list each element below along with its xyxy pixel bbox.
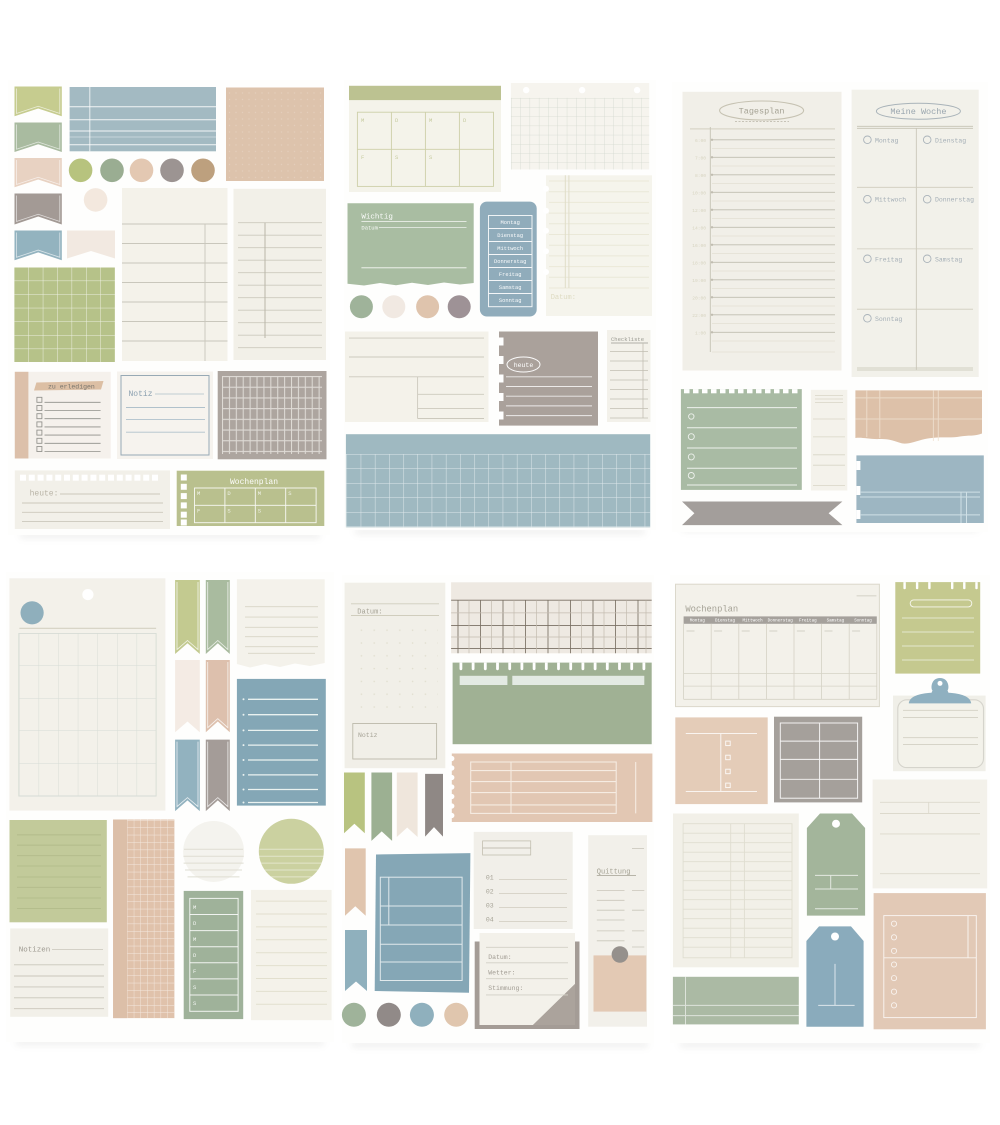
svg-text:Donnerstag: Donnerstag — [935, 197, 974, 204]
svg-text:Datum: Datum — [361, 225, 378, 232]
svg-text:Montag: Montag — [875, 137, 899, 144]
svg-text:04: 04 — [486, 917, 494, 924]
svg-text:Montag: Montag — [500, 220, 519, 226]
svg-text:Donnerstag: Donnerstag — [494, 259, 526, 265]
svg-text:Wetter:: Wetter: — [488, 970, 515, 977]
svg-text:03: 03 — [486, 903, 494, 910]
svg-text:Sonntag: Sonntag — [854, 620, 872, 624]
svg-text:Dienstag: Dienstag — [497, 233, 523, 239]
svg-text:Checkliste: Checkliste — [611, 336, 644, 343]
svg-text:Sonntag: Sonntag — [875, 316, 902, 323]
svg-text:Freitag: Freitag — [799, 619, 817, 624]
svg-text:M: M — [258, 490, 261, 497]
svg-text:1:00: 1:00 — [695, 331, 706, 337]
svg-text:7:00: 7:00 — [695, 156, 706, 162]
svg-text:16:00: 16:00 — [692, 243, 706, 249]
svg-text:Mittwoch: Mittwoch — [875, 197, 906, 204]
svg-text:8:00: 8:00 — [695, 173, 706, 179]
svg-text:F: F — [361, 154, 364, 161]
svg-text:Samstag: Samstag — [499, 285, 522, 291]
svg-text:F: F — [193, 968, 196, 975]
svg-text:02: 02 — [486, 889, 494, 896]
svg-text:10:00: 10:00 — [692, 191, 706, 197]
svg-text:Datum:: Datum: — [488, 954, 511, 961]
svg-text:heute:: heute: — [30, 490, 59, 499]
svg-text:22:00: 22:00 — [692, 313, 706, 319]
svg-text:Wochenplan: Wochenplan — [685, 605, 738, 615]
svg-text:Tagesplan: Tagesplan — [739, 107, 785, 117]
svg-text:Mittwoch: Mittwoch — [743, 619, 764, 624]
svg-text:Meine Woche: Meine Woche — [890, 107, 946, 117]
svg-text:M: M — [429, 117, 432, 124]
svg-text:Mittwoch: Mittwoch — [497, 246, 523, 252]
svg-text:M: M — [193, 904, 196, 911]
svg-text:M: M — [361, 117, 364, 124]
svg-text:Wochenplan: Wochenplan — [230, 478, 278, 487]
svg-text:Stimmung:: Stimmung: — [488, 985, 523, 992]
svg-text:Samstag: Samstag — [827, 620, 845, 624]
svg-text:Donnerstag: Donnerstag — [768, 620, 794, 624]
svg-text:Datum:: Datum: — [551, 294, 576, 302]
svg-text:Freitag: Freitag — [499, 272, 522, 278]
svg-text:Notiz: Notiz — [358, 732, 378, 739]
svg-text:Notiz: Notiz — [129, 390, 153, 399]
svg-text:6:00: 6:00 — [695, 138, 706, 144]
svg-text:M: M — [193, 936, 196, 943]
svg-text:zu erledigen: zu erledigen — [48, 383, 95, 390]
svg-text:20:00: 20:00 — [692, 296, 706, 302]
svg-text:Samstag: Samstag — [935, 256, 962, 263]
svg-text:Dienstag: Dienstag — [935, 137, 966, 144]
svg-text:12:00: 12:00 — [692, 208, 706, 214]
svg-text:F: F — [197, 507, 200, 514]
svg-text:19:00: 19:00 — [692, 278, 706, 284]
svg-text:14:00: 14:00 — [692, 226, 706, 232]
svg-text:heute: heute — [514, 362, 534, 369]
svg-text:Montag: Montag — [690, 620, 706, 624]
svg-text:18:00: 18:00 — [692, 261, 706, 267]
svg-text:Wichtig: Wichtig — [361, 214, 393, 222]
svg-text:01: 01 — [486, 875, 494, 882]
svg-text:Sonntag: Sonntag — [499, 298, 522, 304]
svg-text:Dienstag: Dienstag — [715, 619, 736, 624]
svg-text:Freitag: Freitag — [875, 256, 902, 263]
svg-text:Notizen: Notizen — [19, 947, 51, 955]
svg-text:M: M — [197, 490, 200, 497]
